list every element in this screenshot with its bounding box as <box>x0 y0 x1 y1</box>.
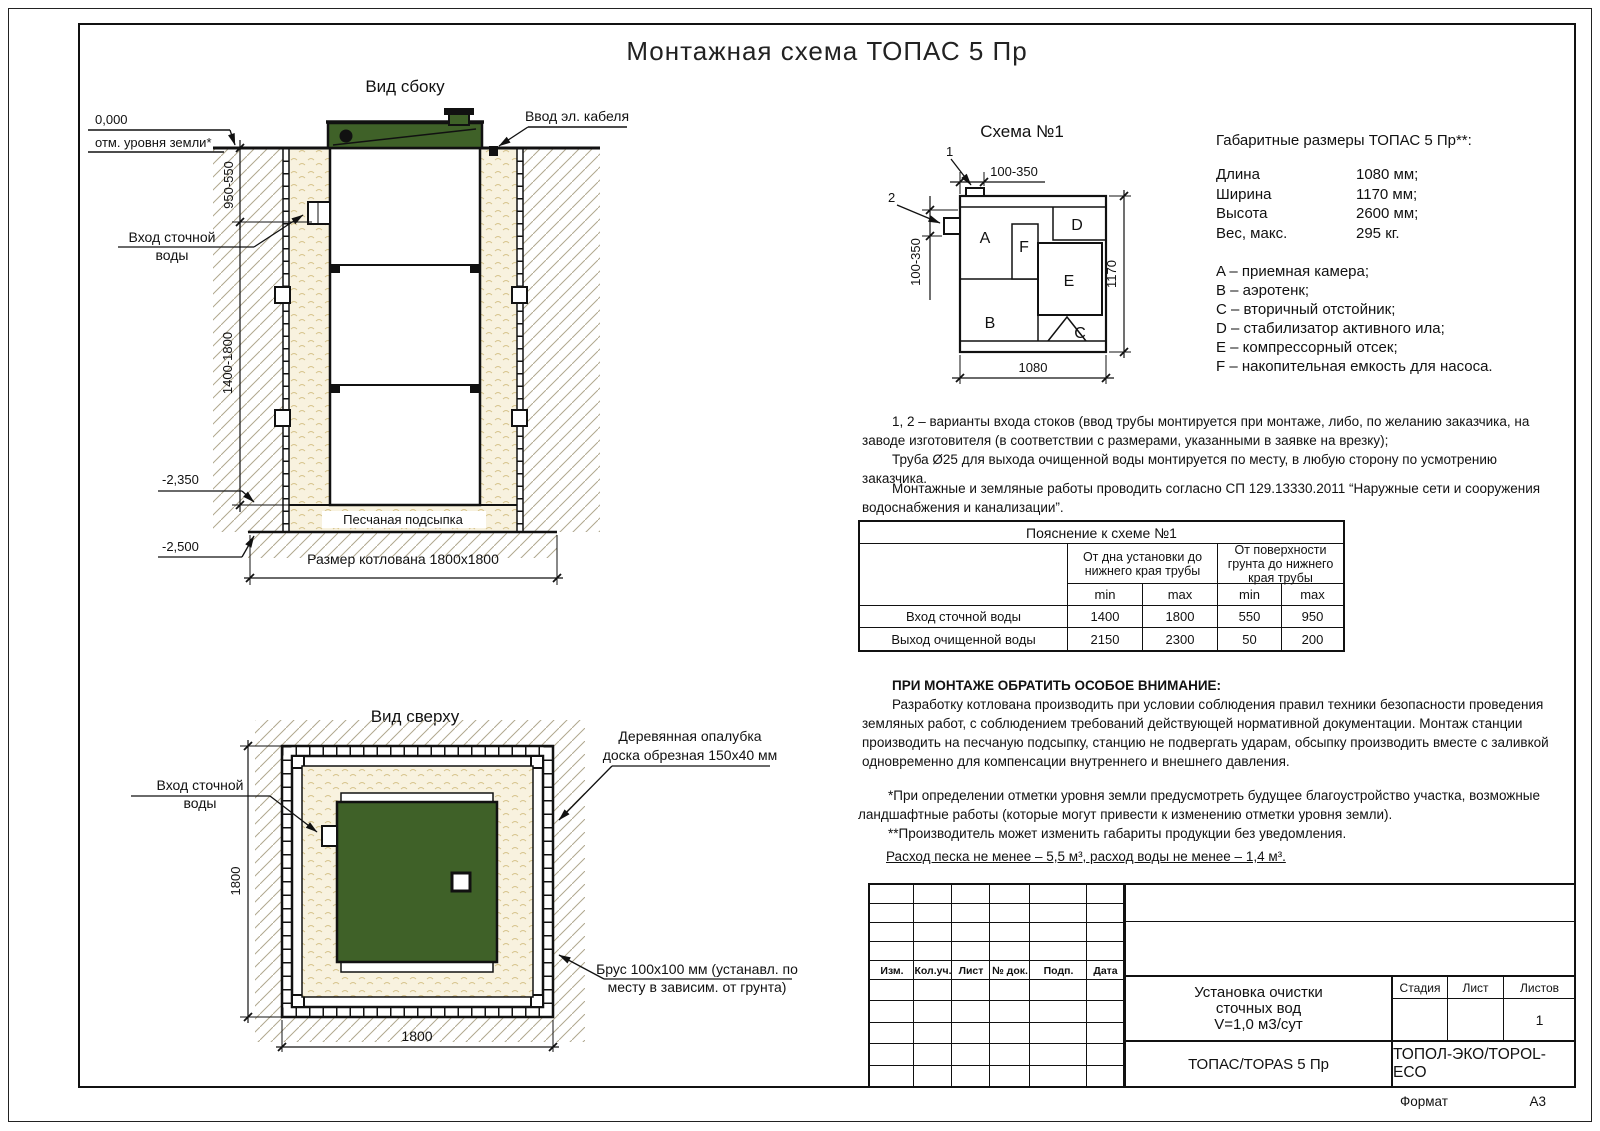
table-cell: 950 <box>1282 606 1343 628</box>
titleblock-cell <box>952 980 990 1001</box>
schema-dim-top: 100-350 <box>990 164 1038 179</box>
titleblock-cell <box>914 1023 952 1044</box>
titleblock-cell <box>952 1001 990 1022</box>
titleblock-cell <box>1087 1044 1124 1065</box>
table-cell: 2150 <box>1068 628 1143 650</box>
inlet-label-line1: Вход сточной <box>129 229 216 245</box>
sheet-value <box>1448 999 1504 1040</box>
titleblock-cell <box>870 1066 914 1087</box>
compartment-c: C <box>1074 325 1086 342</box>
titleblock-cell <box>870 904 914 923</box>
inlet-stub <box>308 202 330 224</box>
compartment-e: E <box>1064 273 1075 290</box>
titleblock-cell <box>1030 1023 1087 1044</box>
company-name: ТОПОЛ-ЭКО/TOPOL-ECO <box>1391 1042 1576 1086</box>
note-sp-standard: Монтажные и земляные работы проводить со… <box>862 479 1548 517</box>
titleblock-cell <box>870 1044 914 1065</box>
titleblock-cell <box>952 885 990 904</box>
titleblock-cell <box>1030 885 1087 904</box>
legend-item: A – приемная камера; <box>1216 262 1576 281</box>
pit-size-label: Размер котлована 1800х1800 <box>307 551 499 567</box>
titleblock-cell <box>870 1023 914 1044</box>
titleblock-cell <box>990 885 1030 904</box>
titleblock-cell <box>990 904 1030 923</box>
titleblock-cell <box>1030 942 1087 961</box>
titleblock-cell <box>952 923 990 942</box>
titleblock-cell <box>1087 1066 1124 1087</box>
titleblock-cell <box>914 980 952 1001</box>
titleblock-cell <box>990 942 1030 961</box>
titleblock-cell <box>990 923 1030 942</box>
zero-mark: 0,000 <box>95 112 128 127</box>
note-text: Монтажные и земляные работы проводить со… <box>862 479 1548 517</box>
footnote-doublestar: **Производитель может изменить габариты … <box>858 824 1548 843</box>
seam-tab <box>470 386 479 393</box>
table-group1-header: От дна установки до нижнего края трубы <box>1068 544 1218 584</box>
table-cell: 550 <box>1218 606 1282 628</box>
format-line: Формат А3 <box>1400 1094 1576 1109</box>
titleblock-cell <box>914 1066 952 1087</box>
dim-lower: 1400-1800 <box>220 332 235 394</box>
legend-item: F – накопительная емкость для насоса. <box>1216 357 1576 376</box>
titleblock-cell <box>1030 1044 1087 1065</box>
titleblock-cell <box>990 1066 1030 1087</box>
titleblock-cell <box>952 904 990 923</box>
titleblock-cell <box>1030 1001 1087 1022</box>
revision-col-list: Лист <box>952 961 990 980</box>
inlet-label-line2: воды <box>184 795 217 811</box>
compartment-b: B <box>985 315 996 332</box>
spec-label: Ширина <box>1216 186 1271 203</box>
format-value: А3 <box>1529 1094 1546 1109</box>
vent-hatch <box>452 873 470 891</box>
revision-grid <box>870 885 1124 1086</box>
marker-1: 1 <box>946 144 953 159</box>
legend-item: D – стабилизатор активного ила; <box>1216 319 1576 338</box>
sheets-value: 1 <box>1504 999 1575 1040</box>
titleblock-cell <box>1030 904 1087 923</box>
dimensions-block: Габаритные размеры ТОПАС 5 Пр**: Длина 1… <box>1216 132 1561 244</box>
titleblock-cell <box>952 942 990 961</box>
footnotes-block: *При определении отметки уровня земли пр… <box>858 786 1548 843</box>
note-text: 1, 2 – варианты входа стоков (ввод трубы… <box>862 412 1548 450</box>
dim-bottom: 1800 <box>401 1028 432 1044</box>
spec-value: 1080 мм; <box>1356 166 1418 183</box>
inlet-label-line2: воды <box>156 247 189 263</box>
revision-col-data: Дата <box>1087 961 1124 980</box>
table-cell: 2300 <box>1143 628 1218 650</box>
titleblock-cell <box>1087 1023 1124 1044</box>
spec-value: 295 кг. <box>1356 225 1400 242</box>
titleblock-cell <box>990 1023 1030 1044</box>
legend-item: B – аэротенк; <box>1216 281 1576 300</box>
titleblock-cell <box>990 1044 1030 1065</box>
model-name: ТОПАС/TOPAS 5 Пр <box>1126 1042 1391 1086</box>
spec-label: Длина <box>1216 166 1260 183</box>
tank-lid-top <box>337 802 497 962</box>
titleblock-cell <box>870 885 914 904</box>
drawing-sheet: Монтажная схема ТОПАС 5 Пр Вид сбоку <box>0 0 1600 1131</box>
inlet-variant-2-stub <box>944 218 960 234</box>
seam-tab <box>470 266 479 273</box>
document-title: Установка очистки сточных вод V=1,0 м3/с… <box>1126 977 1391 1042</box>
compartment-legend: A – приемная камера; B – аэротенк; C – в… <box>1216 262 1576 376</box>
note-inlet-variants: 1, 2 – варианты входа стоков (ввод трубы… <box>862 412 1548 488</box>
titleblock-cell <box>914 904 952 923</box>
beam-label-line2: месту в зависим. от грунта) <box>608 979 787 995</box>
inlet-stub <box>322 826 337 846</box>
cable-label: Ввод эл. кабеля <box>525 108 629 124</box>
titleblock-cell <box>914 1044 952 1065</box>
inlet-label-line1: Вход сточной <box>157 777 244 793</box>
side-view: Вид сбоку <box>88 77 629 585</box>
level-bottom: -2,500 <box>162 539 199 554</box>
stage-label: Стадия <box>1393 977 1448 999</box>
seam-tab <box>331 386 340 393</box>
attention-body: Разработку котлована производить при усл… <box>862 695 1550 771</box>
tank-body <box>330 148 480 505</box>
titleblock-cell <box>1087 1001 1124 1022</box>
leader-arrow <box>230 130 235 145</box>
soil-hatch-right <box>523 148 600 532</box>
table-group2-header: От поверхности грунта до нижнего края тр… <box>1218 544 1343 584</box>
table-cell: 1800 <box>1143 606 1218 628</box>
title-block-right: Установка очистки сточных вод V=1,0 м3/с… <box>1124 885 1574 1086</box>
document-title-line2: сточных вод <box>1216 1001 1301 1017</box>
titleblock-cell <box>1087 923 1124 942</box>
titleblock-cell <box>1030 923 1087 942</box>
sand-bedding-label: Песчаная подсыпка <box>343 512 463 527</box>
attention-block: ПРИ МОНТАЖЕ ОБРАТИТЬ ОСОБОЕ ВНИМАНИЕ: Ра… <box>862 676 1550 771</box>
formwork-label-line1: Деревянная опалубка <box>618 728 761 744</box>
titleblock-cell <box>952 1023 990 1044</box>
compartment-d: D <box>1071 217 1083 234</box>
footnote-star: *При определении отметки уровня земли пр… <box>858 786 1548 824</box>
titleblock-cell <box>914 923 952 942</box>
side-view-title: Вид сбоку <box>365 77 445 96</box>
dimensions-title: Габаритные размеры ТОПАС 5 Пр**: <box>1216 132 1561 149</box>
revision-col-podp: Подп. <box>1030 961 1087 980</box>
revision-col-ndok: № док. <box>990 961 1030 980</box>
seam-tab <box>331 266 340 273</box>
titleblock-cell <box>870 942 914 961</box>
level-sand: -2,350 <box>162 472 199 487</box>
spec-label: Высота <box>1216 205 1268 222</box>
titleblock-cell <box>870 980 914 1001</box>
spec-value: 2600 мм; <box>1356 205 1418 222</box>
spec-label: Вес, макс. <box>1216 225 1287 242</box>
table-max-header: max <box>1282 584 1343 606</box>
title-block: Изм. Кол.уч. Лист № док. Подп. Дата Уста… <box>868 883 1576 1088</box>
titleblock-cell <box>952 1044 990 1065</box>
titleblock-cell <box>914 1001 952 1022</box>
table-row-label: Вход сточной воды <box>860 606 1068 628</box>
doc-code-cell <box>1126 885 1574 922</box>
doc-code-cell2 <box>1126 922 1574 977</box>
titleblock-cell <box>870 1001 914 1022</box>
compartment-a: A <box>980 230 991 247</box>
format-label: Формат <box>1400 1094 1448 1109</box>
formwork-label-line2: доска обрезная 150х40 мм <box>603 747 778 763</box>
schema-dim-right: 1170 <box>1104 260 1119 288</box>
titleblock-cell <box>1087 885 1124 904</box>
titleblock-cell <box>990 980 1030 1001</box>
titleblock-cell <box>914 885 952 904</box>
table-min-header: min <box>1218 584 1282 606</box>
attention-heading: ПРИ МОНТАЖЕ ОБРАТИТЬ ОСОБОЕ ВНИМАНИЕ: <box>862 676 1550 695</box>
wall-connector <box>275 287 290 303</box>
sand-backfill-right <box>480 148 517 505</box>
zero-label: отм. уровня земли* <box>95 135 212 150</box>
titleblock-cell <box>952 1066 990 1087</box>
wall-connector <box>275 410 290 426</box>
table-min-header: min <box>1068 584 1143 606</box>
wall-connector <box>512 410 527 426</box>
sheet-label: Лист <box>1448 977 1504 999</box>
document-title-line1: Установка очистки <box>1194 985 1323 1001</box>
vent-cap <box>444 108 474 115</box>
stage-grid: Стадия Лист Листов 1 <box>1391 977 1576 1042</box>
top-view: Вид сверху 1800 <box>131 707 798 1052</box>
schema-dim-bottom: 1080 <box>1019 360 1048 375</box>
schema-1: Схема №1 A B C D E F 1 2 <box>888 122 1131 384</box>
marker-2: 2 <box>888 190 895 205</box>
cable-entry-point <box>489 146 498 156</box>
revision-col-izm: Изм. <box>870 961 914 980</box>
table-max-header: max <box>1143 584 1218 606</box>
spec-row: Высота 2600 мм; <box>1216 205 1561 225</box>
dim-upper: 950-550 <box>221 161 236 209</box>
legend-item: E – компрессорный отсек; <box>1216 338 1576 357</box>
dim-left: 1800 <box>228 867 243 896</box>
compartment-f: F <box>1019 239 1029 256</box>
schema-title: Схема №1 <box>980 122 1064 141</box>
stage-value <box>1393 999 1448 1040</box>
beam-label-line1: Брус 100х100 мм (устанавл. по <box>596 961 798 977</box>
sheets-label: Листов <box>1504 977 1575 999</box>
table-title: Пояснение к схеме №1 <box>860 522 1343 544</box>
spec-row: Длина 1080 мм; <box>1216 166 1561 186</box>
titleblock-cell <box>990 1001 1030 1022</box>
inlet-variant-1-stub <box>966 188 984 196</box>
table-cell: 200 <box>1282 628 1343 650</box>
lid-latch <box>340 130 353 143</box>
titleblock-cell <box>870 923 914 942</box>
legend-item: C – вторичный отстойник; <box>1216 300 1576 319</box>
titleblock-cell <box>1087 980 1124 1001</box>
leader-arrow <box>499 127 528 146</box>
spec-row: Ширина 1170 мм; <box>1216 186 1561 206</box>
table-corner-cell <box>860 544 1068 606</box>
titleblock-cell <box>1087 904 1124 923</box>
schema-dim-left: 100-350 <box>908 238 923 286</box>
revision-col-koluch: Кол.уч. <box>914 961 952 980</box>
document-title-line3: V=1,0 м3/сут <box>1214 1017 1302 1033</box>
titleblock-cell <box>1087 942 1124 961</box>
table-cell: 1400 <box>1068 606 1143 628</box>
spec-value: 1170 мм; <box>1356 186 1417 203</box>
titleblock-cell <box>914 942 952 961</box>
table-cell: 50 <box>1218 628 1282 650</box>
spec-row: Вес, макс. 295 кг. <box>1216 225 1561 245</box>
explanation-table: Пояснение к схеме №1 От дна установки до… <box>858 520 1345 652</box>
titleblock-cell <box>1030 1066 1087 1087</box>
vent-pipe <box>449 114 469 125</box>
wall-connector <box>512 287 527 303</box>
consumption-note: Расход песка не менее – 5,5 м³, расход в… <box>886 849 1546 864</box>
table-row-label: Выход очищенной воды <box>860 628 1068 650</box>
titleblock-cell <box>1030 980 1087 1001</box>
